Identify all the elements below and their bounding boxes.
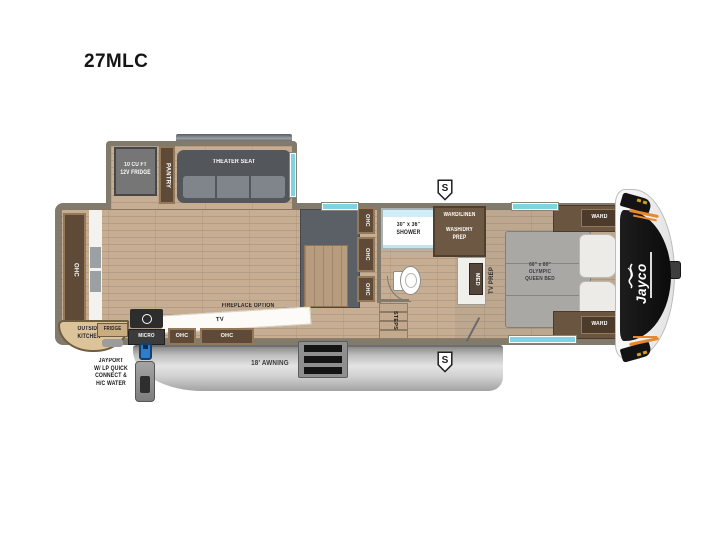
connector-cap (143, 345, 148, 349)
bottom-ohc-large-label: OHC (200, 333, 254, 340)
caddy-port (140, 376, 150, 393)
bedroom-top-window (512, 203, 558, 210)
shower: 30" x 36" SHOWER (381, 208, 436, 250)
med-label: MED (473, 268, 480, 290)
pillow-top (579, 234, 617, 278)
ward-bottom-label: WARD (584, 321, 615, 329)
step-tread-3 (304, 367, 342, 374)
fridge-label: 10 CU FT 12V FRIDGE (116, 162, 155, 177)
theater-seat: THEATER SEAT (177, 150, 291, 203)
safety-badge-bottom: S (437, 351, 453, 373)
jayport-connector (139, 343, 152, 360)
kitchen-window (322, 203, 358, 210)
bedroom-bottom-window (509, 336, 576, 343)
ward-top-label: WARD (584, 214, 615, 222)
kitchen-ohc-1-label: OHC (363, 211, 370, 230)
cooktop-box (130, 309, 163, 328)
micro-label: MICRO (131, 333, 162, 340)
pantry-label: PANTRY (163, 152, 171, 200)
step-tread-1 (304, 345, 342, 352)
page-title: 27MLC (84, 51, 148, 73)
rear-window-1 (90, 247, 101, 268)
jayport-label: JAYPORT W/ LP QUICK CONNECT & H/C WATER (86, 358, 135, 388)
kitchen-ohc-2-label: OHC (363, 245, 370, 264)
floorplan-page: 27MLC 18' AWNING 10 CU FT 12V FRIDGE PAN… (0, 0, 720, 540)
safety-badge-top-letter: S (442, 183, 449, 194)
rear-window-2 (90, 271, 101, 292)
safety-badge-top: S (437, 179, 453, 201)
kitchen-ohc-3-label: OHC (363, 280, 370, 299)
jayport-caddy (135, 361, 155, 402)
cap-stripe-bottom-2 (633, 336, 657, 338)
bath-bottom-wall (379, 299, 409, 302)
rear-ohc-label: OHC (71, 250, 79, 290)
kitchen-island (304, 245, 348, 307)
safety-badge-bottom-letter: S (442, 355, 449, 366)
brand-underline (650, 252, 652, 298)
slideout-window (290, 153, 296, 197)
outside-fridge-vent (102, 339, 123, 347)
tv-prep-label: TV PREP (489, 262, 497, 298)
ward-linen-label: WARD/LINEN (437, 212, 483, 220)
shower-tray-line (383, 245, 434, 248)
bed-label: 66" x 80" OLYMPIC QUEEN BED (514, 262, 566, 284)
outside-fridge-label: FRIDGE (100, 326, 125, 333)
shower-glass (383, 210, 434, 217)
tv-label: TV (210, 316, 230, 325)
wash-dry-label: WASH/DRY PREP (438, 227, 480, 242)
entry-steps (298, 341, 348, 378)
theater-cushions (183, 176, 285, 198)
steps-label: STEPS (391, 306, 398, 336)
shower-label: 30" x 36" SHOWER (387, 222, 430, 237)
burner-icon (142, 314, 152, 324)
brand-logo: Jayco (634, 243, 651, 325)
step-tread-2 (304, 356, 342, 363)
theater-label: THEATER SEAT (183, 159, 286, 167)
awning-label: 18' AWNING (243, 360, 297, 369)
bottom-ohc-small-label: OHC (168, 333, 196, 340)
